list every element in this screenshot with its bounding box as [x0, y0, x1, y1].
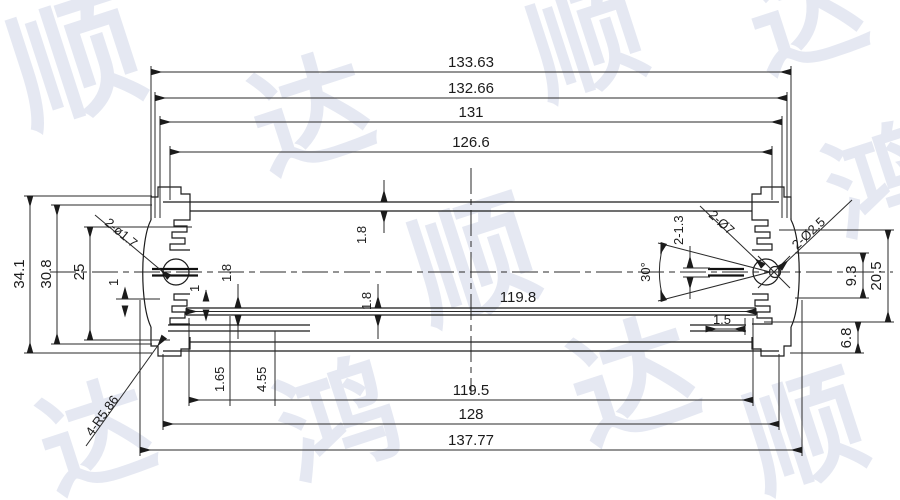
- dim-label-128: 128: [458, 406, 483, 423]
- dim-label-1-8-wall: 1.8: [354, 226, 369, 244]
- serration-right-upper: [752, 216, 772, 250]
- left-end-arc: [143, 220, 151, 327]
- drawing-canvas: 顺 达 顺 达 顺 达 鸿 达 顺 鸿: [0, 0, 900, 500]
- dim-label-133-63: 133.63: [448, 54, 494, 71]
- callout-2-dia-2-5: 2-Ø2.5: [789, 214, 828, 252]
- dim-label-1-b: 1: [187, 285, 202, 292]
- dim-label-1-5: 1.5: [713, 312, 731, 327]
- dim-label-132-66: 132.66: [448, 80, 494, 97]
- watermark-glyph: 鸿: [810, 104, 900, 260]
- dim-label-9-3: 9.3: [843, 266, 860, 287]
- serration-right-lower: [752, 294, 772, 324]
- watermark-glyph: 鸿: [261, 337, 416, 500]
- dim-label-1-65: 1.65: [212, 367, 227, 392]
- dim-label-131: 131: [458, 104, 483, 121]
- dim-label-4-55: 4.55: [254, 367, 269, 392]
- dim-label-137-77: 137.77: [448, 432, 494, 449]
- watermark-glyph: 顺: [512, 0, 662, 124]
- dim-label-119-5: 119.5: [453, 382, 489, 399]
- dim-label-119-8: 119.8: [500, 289, 536, 306]
- dim-label-34-1: 34.1: [11, 259, 28, 288]
- dim-label-30-deg: 30°: [638, 262, 653, 282]
- dim-label-25: 25: [71, 264, 88, 281]
- dim-label-2-1-3: 2-1.3: [671, 215, 686, 245]
- dim-label-30-8: 30.8: [38, 259, 55, 288]
- dim-label-6-8: 6.8: [838, 328, 855, 349]
- dim-label-1-a: 1: [106, 279, 121, 286]
- dim-label-1-8-rail-left: 1.8: [219, 264, 234, 282]
- callout-2-dia-7: 2-Ø7: [706, 207, 738, 237]
- extrusion-profile-drawing: 顺 达 顺 达 顺 达 鸿 达 顺 鸿: [0, 0, 900, 500]
- watermark-glyph: 达: [553, 295, 715, 470]
- dim-label-1-8-rail-mid: 1.8: [359, 292, 374, 310]
- step-bottom-right: [752, 327, 791, 356]
- serration-left-upper: [170, 216, 190, 250]
- serration-left-lower: [170, 294, 190, 324]
- callout-2-dia-1-7: 2-ø1.7: [102, 215, 140, 251]
- watermark-glyph: 顺: [0, 0, 161, 154]
- dim-label-20-5: 20.5: [868, 261, 885, 290]
- watermark-glyph: 达: [234, 31, 389, 199]
- watermark-glyph: 达: [732, 0, 882, 98]
- dim-label-126-6: 126.6: [452, 134, 490, 151]
